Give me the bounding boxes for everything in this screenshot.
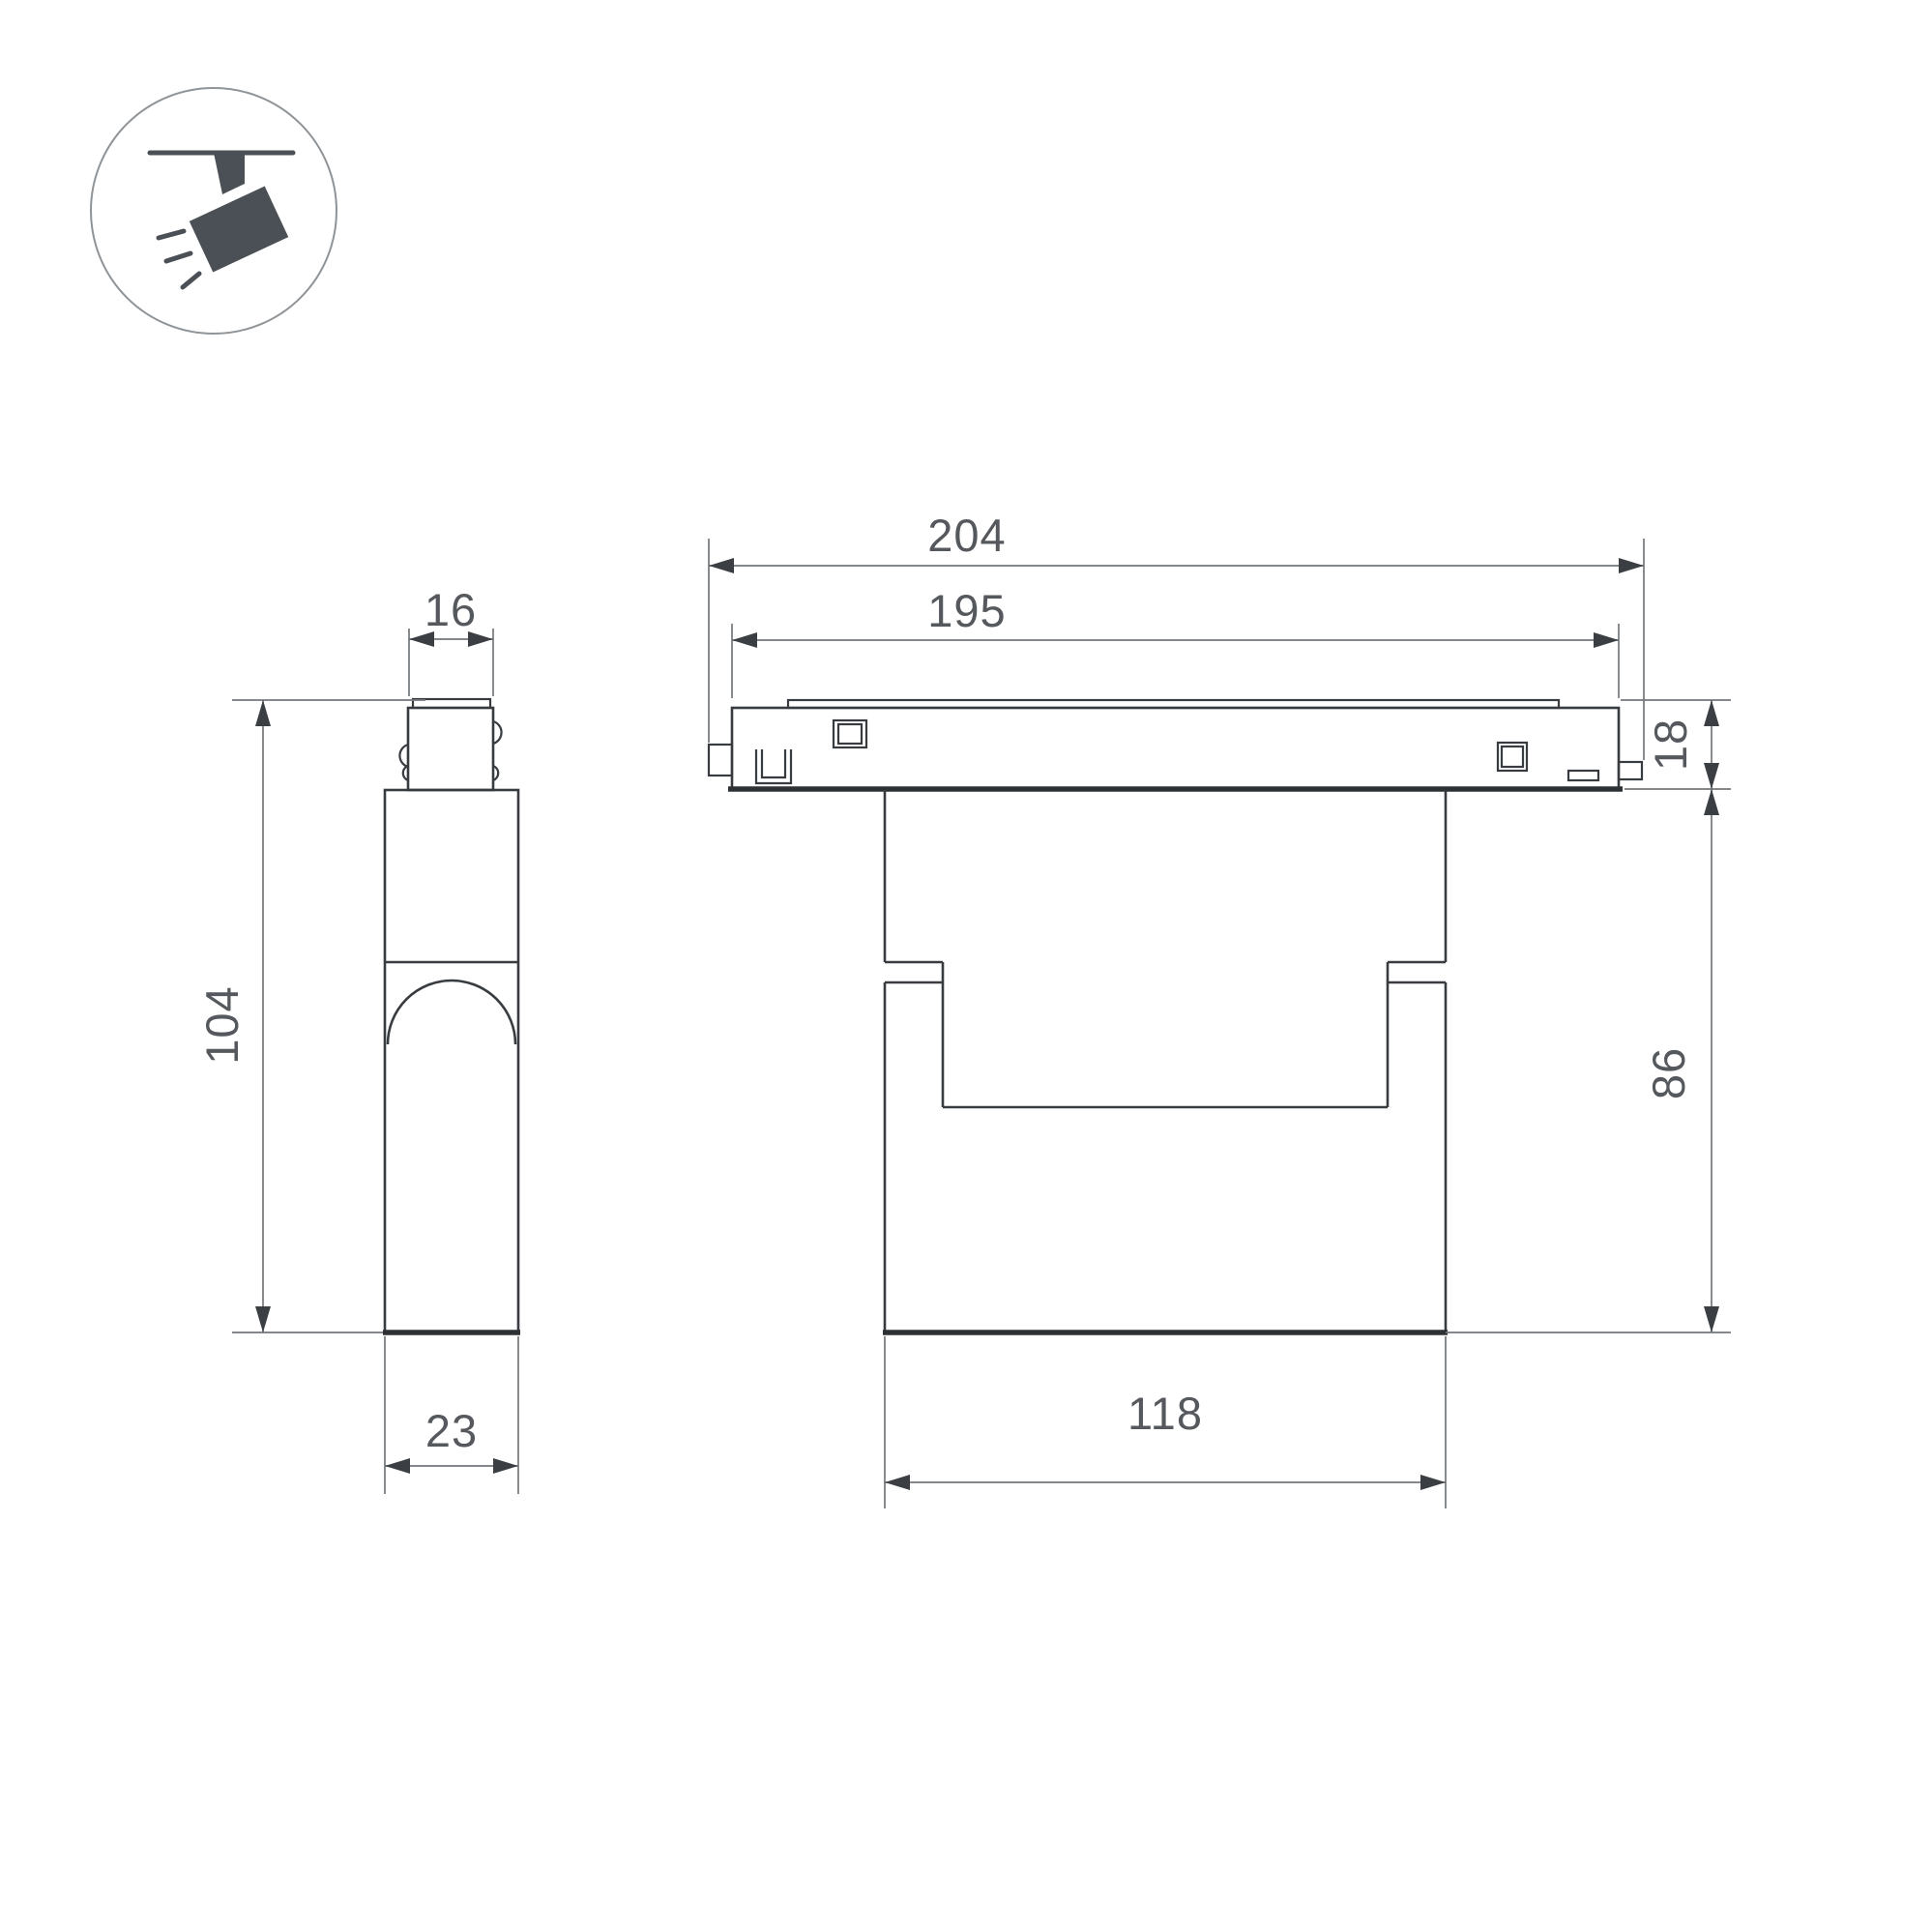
dimension-16: 16 [409,584,493,696]
dimension-118: 118 [885,1336,1446,1508]
track-pin-left [709,745,732,776]
dimension-86: 86 [1446,789,1731,1332]
side-view: 16 104 23 [196,584,520,1494]
track-clip-inner [762,749,785,777]
icon-lamp-head [190,187,288,273]
dimension-195: 195 [732,585,1619,698]
dim-label-18: 18 [1645,718,1696,771]
drawing-svg: 16 104 23 [0,0,1932,1932]
track-window-left-inner [838,724,862,744]
dim-label-86: 86 [1643,1047,1694,1099]
track-window-right-inner [1502,746,1523,767]
dimension-18: 18 [1621,700,1731,789]
dimension-drawing: 16 104 23 [0,0,1932,1932]
icon-light-ray [159,231,184,238]
front-view: 204 195 18 86 [709,510,1731,1508]
icon-light-ray [166,253,190,261]
dim-label-118: 118 [1127,1388,1203,1439]
adapter-body [408,708,493,790]
side-body [385,790,518,1332]
dim-label-195: 195 [927,585,1006,636]
side-body-arch [388,981,515,1044]
track-spotlight-icon [91,88,337,334]
dimension-204: 204 [709,510,1644,760]
dim-label-16: 16 [424,584,477,635]
dim-label-104: 104 [196,985,248,1064]
dim-label-204: 204 [927,510,1006,561]
track-pin-right [1619,762,1642,779]
icon-track-stem [214,153,245,194]
dim-label-23: 23 [425,1405,478,1456]
dimension-23: 23 [385,1336,518,1494]
dimension-104: 104 [196,700,425,1332]
lamp-body [883,790,1448,1332]
track-vent-slot [1568,771,1598,780]
icon-light-ray [183,274,199,287]
